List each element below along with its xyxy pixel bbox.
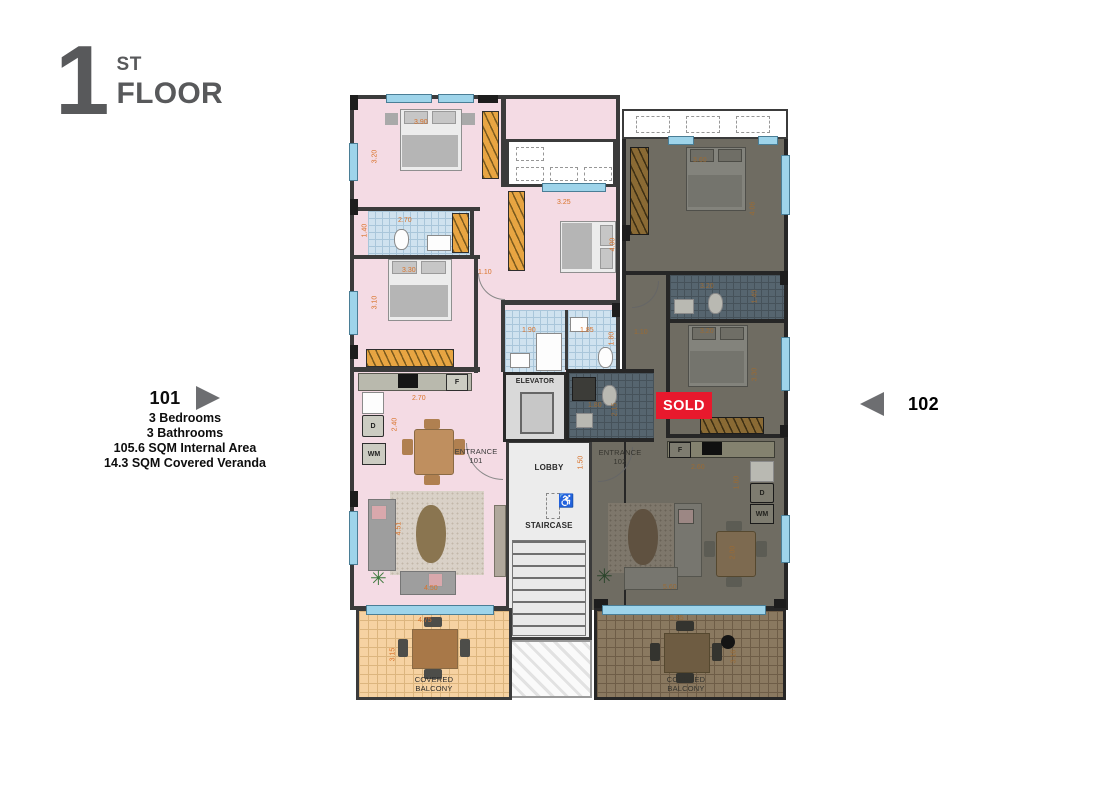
elevator-label: ELEVATOR xyxy=(503,378,567,387)
chair xyxy=(424,419,440,429)
apartment-102-info: 102 xyxy=(860,392,939,416)
floor-plan: ♿ ELEVATOR xyxy=(350,95,795,720)
sold-badge: SOLD xyxy=(656,392,712,419)
chair xyxy=(712,643,722,661)
entrance-word: ENTRANCE xyxy=(455,447,498,456)
bathtub xyxy=(536,333,562,371)
dim-label: 1.85 xyxy=(580,327,594,334)
balcony-word-1: COVERED xyxy=(415,675,454,684)
dim-label: 3.90 xyxy=(414,119,428,126)
dim-label: 1.50 xyxy=(577,456,584,470)
nightstand xyxy=(462,113,475,125)
dim-label: 2.15 xyxy=(611,403,618,417)
toilet xyxy=(708,293,723,314)
wardrobe xyxy=(482,111,499,179)
entrance-number: 102 xyxy=(613,457,626,466)
column xyxy=(350,199,358,215)
pillow xyxy=(421,261,446,274)
wall xyxy=(565,310,568,370)
dim-label: 1.40 xyxy=(361,224,368,238)
column xyxy=(612,303,620,317)
wall xyxy=(354,207,480,211)
wall xyxy=(501,300,616,305)
apartment-101-bathrooms: 3 Bathrooms xyxy=(45,426,325,441)
balcony-word-1: COVERED xyxy=(667,675,706,684)
parapet xyxy=(506,640,592,698)
chair xyxy=(398,639,408,657)
stove xyxy=(398,374,418,388)
shower xyxy=(572,377,596,401)
entrance-102-label: ENTRANCE 102 xyxy=(592,448,648,467)
chair xyxy=(650,643,660,661)
apartment-101-info: 101 3 Bedrooms 3 Bathrooms 105.6 SQM Int… xyxy=(45,385,325,471)
window xyxy=(781,337,790,391)
dim-label: 3.16 xyxy=(730,650,737,664)
column xyxy=(774,599,786,608)
dim-label: 3.60 xyxy=(693,157,707,164)
dim-label: 2.70 xyxy=(398,217,412,224)
dim-label: 1.80 xyxy=(588,402,602,409)
window xyxy=(366,605,494,615)
nightstand xyxy=(385,113,398,125)
dim-label: 3.15 xyxy=(389,648,396,662)
window xyxy=(781,515,790,563)
balcony-word-2: BALCONY xyxy=(667,684,704,693)
floor-suffix: ST xyxy=(117,54,224,76)
staircase-treads xyxy=(512,540,586,636)
kitchen-sink xyxy=(750,461,774,482)
window xyxy=(758,136,778,145)
dim-label: 4.51 xyxy=(395,522,402,536)
wall xyxy=(354,255,480,259)
sink xyxy=(427,235,451,251)
plant: ✳ xyxy=(596,567,613,587)
wardrobe xyxy=(508,191,525,271)
column xyxy=(350,95,358,110)
entrance-101-label: ENTRANCE 101 xyxy=(448,447,504,466)
chair xyxy=(704,541,715,557)
sink xyxy=(576,413,593,428)
window xyxy=(438,94,474,103)
window xyxy=(386,94,432,103)
dim-label: 1.80 xyxy=(608,332,615,346)
wall xyxy=(626,271,784,275)
arrow-right-icon xyxy=(196,386,220,410)
cushion xyxy=(371,505,387,520)
wall xyxy=(470,207,474,259)
tv-unit xyxy=(494,505,506,577)
planter-box xyxy=(516,147,544,161)
dim-label: 1.90 xyxy=(522,327,536,334)
dim-label: 3.30 xyxy=(402,267,416,274)
window xyxy=(349,291,358,335)
staircase-label: STAIRCASE xyxy=(506,521,592,531)
wall xyxy=(566,369,654,373)
column xyxy=(478,95,498,103)
wall xyxy=(666,434,784,438)
dim-label: 3.20 xyxy=(700,283,714,290)
column xyxy=(350,491,358,507)
apartment-101-bedrooms: 3 Bedrooms xyxy=(45,411,325,426)
dim-label: 3.20 xyxy=(700,328,714,335)
kitchen-sink xyxy=(362,392,384,414)
column xyxy=(350,345,358,359)
sink xyxy=(674,299,694,314)
dim-label: 4.50 xyxy=(424,585,438,592)
chair xyxy=(726,577,742,587)
planter-box xyxy=(550,167,578,181)
wall xyxy=(501,305,505,372)
side-table xyxy=(721,635,735,649)
dim-label: 5.85 xyxy=(670,615,684,622)
chair xyxy=(726,521,742,531)
chair xyxy=(756,541,767,557)
planter-box xyxy=(636,116,670,133)
dim-label: 2.60 xyxy=(691,464,705,471)
lobby-label: LOBBY xyxy=(510,463,588,473)
dim-label: 5.60 xyxy=(663,584,677,591)
toilet xyxy=(394,229,409,250)
stove xyxy=(702,442,722,455)
chair xyxy=(460,639,470,657)
dim-label: 2.40 xyxy=(391,418,398,432)
elevator-car xyxy=(520,392,554,434)
dim-label: 1.10 xyxy=(478,269,492,276)
pillow xyxy=(720,327,744,340)
column xyxy=(780,271,788,285)
dim-label: 3.25 xyxy=(557,199,571,206)
window xyxy=(602,605,766,615)
floor-number: 1 xyxy=(55,44,110,116)
apartment-101-internal-area: 105.6 SQM Internal Area xyxy=(45,441,325,456)
dim-label: 2.70 xyxy=(412,395,426,402)
wardrobe xyxy=(700,417,764,434)
chair xyxy=(402,439,413,455)
covered-balcony-102-label: COVERED BALCONY xyxy=(634,675,738,694)
coffee-table xyxy=(628,509,658,565)
planter-box xyxy=(516,167,544,181)
covered-balcony-101-label: COVERED BALCONY xyxy=(382,675,486,694)
planter-box xyxy=(584,167,612,181)
apartment-101-veranda: 14.3 SQM Covered Veranda xyxy=(45,456,325,471)
dim-label: 3.30 xyxy=(751,368,758,382)
blanket xyxy=(390,285,448,317)
balcony-word-2: BALCONY xyxy=(415,684,452,693)
planter-box xyxy=(736,116,770,133)
chair xyxy=(424,475,440,485)
window xyxy=(542,183,606,192)
plant: ✳ xyxy=(370,569,387,589)
apartment-101-number-row: 101 xyxy=(45,385,325,411)
entrance-word: ENTRANCE xyxy=(599,448,642,457)
coffee-table xyxy=(416,505,446,563)
blanket xyxy=(402,135,458,167)
window xyxy=(349,511,358,565)
page: 1 ST FLOOR 101 3 Bedrooms 3 Bathrooms 10… xyxy=(0,0,1120,793)
column xyxy=(780,425,788,437)
dim-label: 2.00 xyxy=(729,546,736,560)
window xyxy=(349,143,358,181)
wardrobe xyxy=(630,147,649,235)
dim-label: 4.00 xyxy=(609,238,616,252)
pillow xyxy=(718,149,742,162)
apartment-101-number: 101 xyxy=(150,388,181,409)
accessible-icon: ♿ xyxy=(558,493,574,509)
pillow xyxy=(432,111,456,124)
dim-label: 1.40 xyxy=(751,290,758,304)
chair xyxy=(676,621,694,631)
dim-label: 3.20 xyxy=(371,150,378,164)
wall xyxy=(566,438,654,442)
fridge: F xyxy=(446,374,468,391)
wall xyxy=(501,99,506,187)
dim-label: 1.10 xyxy=(634,329,648,336)
dishwasher: D xyxy=(362,415,384,437)
floor-title: 1 ST FLOOR xyxy=(55,44,223,116)
blanket xyxy=(688,175,742,207)
wall xyxy=(354,367,480,372)
toilet xyxy=(598,347,613,368)
wardrobe xyxy=(452,213,469,253)
column xyxy=(622,225,630,241)
balcony-table xyxy=(664,633,710,673)
apartment-102-number: 102 xyxy=(908,394,939,415)
window xyxy=(781,155,790,215)
washing-machine: WM xyxy=(750,504,774,524)
blanket xyxy=(690,351,744,383)
wardrobe xyxy=(366,349,454,367)
floor-title-text: ST FLOOR xyxy=(117,54,224,116)
washing-machine: WM xyxy=(362,443,386,465)
sink xyxy=(510,353,530,368)
dim-label: 4.75 xyxy=(418,617,432,624)
dim-label: 1.80 xyxy=(733,476,740,490)
balcony-table xyxy=(412,629,458,669)
wall xyxy=(670,319,784,323)
dim-label: 3.10 xyxy=(371,296,378,310)
window xyxy=(668,136,694,145)
dishwasher: D xyxy=(750,483,774,503)
dim-label: 4.06 xyxy=(749,202,756,216)
planter-box xyxy=(686,116,720,133)
arrow-left-icon xyxy=(860,392,884,416)
cushion xyxy=(678,509,694,524)
fridge: F xyxy=(669,442,691,458)
entrance-number: 101 xyxy=(469,456,482,465)
blanket xyxy=(562,223,592,269)
floor-word: FLOOR xyxy=(117,77,224,111)
